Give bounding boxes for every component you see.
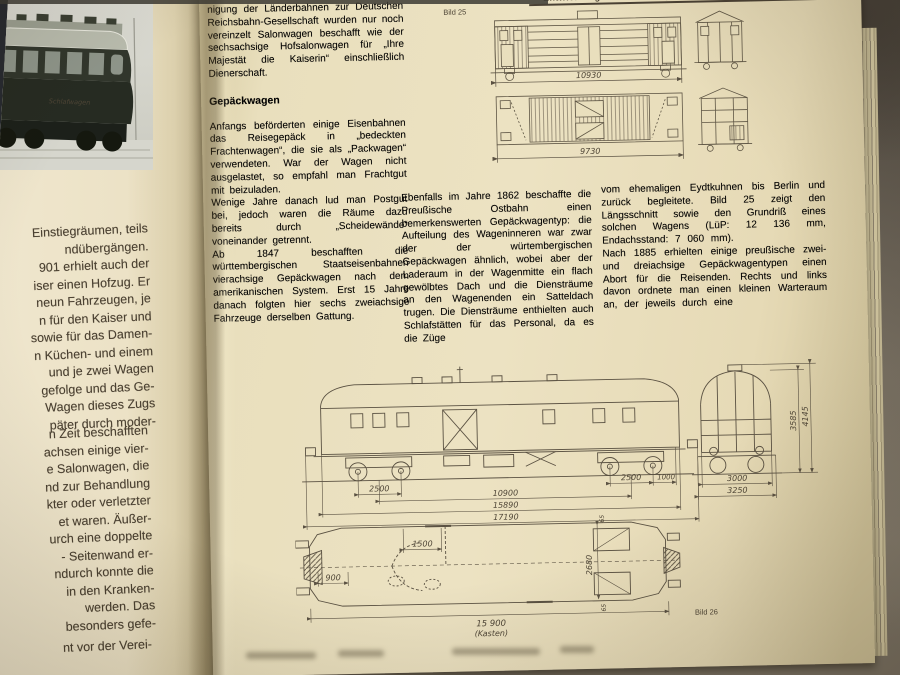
text-column-2: Ebenfalls im Jahre 1862 beschaffte die P… xyxy=(401,189,594,347)
bild26-end-dimensions: 3000 3250 3585 4145 xyxy=(696,363,819,499)
dim-plan-door: 1500 xyxy=(412,539,433,548)
dim-length-buffers: 17190 xyxy=(493,512,519,522)
dim-wall-bottom: 65 xyxy=(601,604,608,612)
paragraph: nigung der Länderbahnen zur Deutschen Re… xyxy=(207,1,405,82)
bild26-end-view xyxy=(690,364,782,475)
left-page-text-fragment-2: n Zeit beschafftenachsen einige vier- e … xyxy=(0,422,156,639)
paragraph: Ab 1847 beschafften die württembergische… xyxy=(212,245,410,326)
dim-plan-length: 15 900 xyxy=(476,619,506,630)
bild26-side-dimensions: 2500 1000 2500 10900 15890 17190 xyxy=(306,447,699,530)
dim-width-body: 3000 xyxy=(727,474,748,483)
dim-height-roof: 3585 xyxy=(789,410,798,431)
paragraph: Wenige Jahre danach lud man Postgut bei,… xyxy=(211,194,408,249)
railcar-photo: Schlafwagen xyxy=(0,0,153,170)
railcar: Schlafwagen xyxy=(0,12,136,152)
bild26-plan-view xyxy=(295,521,681,607)
paragraph: vom ehemaligen Eydtkuhnen bis Berlin und… xyxy=(601,180,826,249)
bild25-end-view-lower xyxy=(697,87,752,151)
book-photo-scene: Schlafwagen Einstiegräumen, teilsndüberg… xyxy=(0,0,900,675)
background-edge-top xyxy=(0,0,548,4)
svg-text:10930: 10930 xyxy=(576,71,602,81)
railcar-lettering: Schlafwagen xyxy=(49,97,91,106)
dim-length-body: 15890 xyxy=(493,500,519,510)
dim-overhang: 1000 xyxy=(657,473,676,481)
ghost-print xyxy=(338,650,384,657)
ghost-print xyxy=(560,646,594,653)
text-column-3: vom ehemaligen Eydtkuhnen bis Berlin und… xyxy=(601,180,828,313)
dim-center: 10900 xyxy=(493,488,519,498)
figure-25-label: Bild 25 xyxy=(443,7,466,16)
left-page-text-fragment-1: Einstiegräumen, teilsndübergängen. 901 e… xyxy=(0,220,156,437)
bild26-side-elevation xyxy=(300,362,698,482)
text-column-1: nigung der Länderbahnen zur Deutschen Re… xyxy=(207,1,410,326)
ghost-print xyxy=(452,648,540,655)
bild25-floor-plan xyxy=(496,93,683,145)
paragraph: Ebenfalls im Jahre 1862 beschaffte die P… xyxy=(401,189,594,347)
dim-plan-length-note: (Kasten) xyxy=(475,629,509,639)
dim-height-total: 4145 xyxy=(801,406,810,427)
paragraph: Anfangs beförderten einige Eisenbahnen d… xyxy=(210,117,408,198)
svg-text:9730: 9730 xyxy=(580,147,601,156)
dim-wall-top: 65 xyxy=(599,515,606,523)
dim-plan-width: 2680 xyxy=(585,555,594,576)
paragraph: Nach 1885 erhielten einige preußische zw… xyxy=(602,244,827,313)
left-book-page: Schlafwagen Einstiegräumen, teilsndüberg… xyxy=(0,0,218,675)
dim-bogie-left: 2500 xyxy=(369,484,390,493)
dim-bogie-right: 2500 xyxy=(621,473,642,482)
dim-plan-end: 900 xyxy=(325,573,340,582)
left-page-text-fragment-3: nt vor der Verei- xyxy=(0,636,152,661)
dim-width-overall: 3250 xyxy=(727,486,748,495)
bild26-plan-dimensions: 1500 900 2680 65 65 15 900 (Kasten) xyxy=(309,513,669,641)
figure-bild-25: Bild 25 1 xyxy=(439,0,783,176)
ghost-print xyxy=(246,652,316,659)
figure-26-label: Bild 26 xyxy=(695,607,718,616)
right-book-page: Entwicklung der Reisezugwagen 29 nigung … xyxy=(199,0,875,675)
section-heading: Gepäckwagen xyxy=(209,91,405,108)
figure-bild-26: 2500 1000 2500 10900 15890 17190 xyxy=(292,357,878,647)
railcar-photo-art: Schlafwagen xyxy=(0,0,153,170)
bild25-end-view-upper xyxy=(693,11,746,70)
